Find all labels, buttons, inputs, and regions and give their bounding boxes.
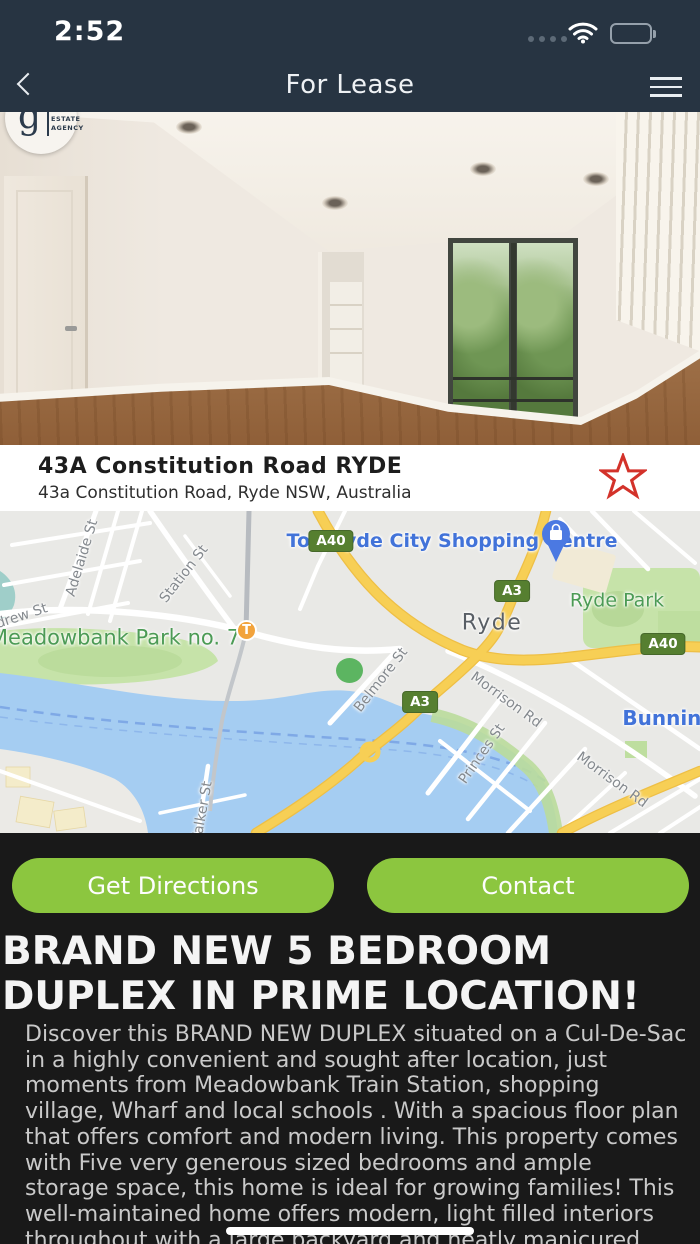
downlight [322,196,348,210]
route-shield-a3: A3 [402,691,438,713]
agency-monogram: g [18,112,41,137]
poi-label-ryde-park: Ryde Park [570,590,664,613]
listing-detail: Get Directions Contact BRAND NEW 5 BEDRO… [0,833,700,1244]
property-photo[interactable]: g REAL ESTATE AGENCY [0,112,700,445]
downlight [583,172,609,186]
photo-vertical-blinds [616,112,700,372]
property-title: 43A Constitution Road RYDE [38,454,402,479]
get-directions-button[interactable]: Get Directions [12,858,334,913]
hamburger-menu-button[interactable] [646,68,686,100]
app-header: 2:52 For Lease [0,0,700,112]
property-location-marker[interactable] [336,658,363,683]
photo-hallway [318,252,364,394]
photo-balcony-door [448,238,578,426]
home-indicator[interactable] [226,1227,474,1235]
status-bar: 2:52 [0,0,700,56]
agency-logo-text: REAL ESTATE AGENCY [51,112,84,133]
map-view[interactable]: Adelaide St Station St Andrew St Belmore… [0,511,700,833]
clock: 2:52 [54,16,125,47]
nav-bar: For Lease [0,56,700,112]
locality-label-ryde: Ryde [462,611,523,636]
property-address: 43a Constitution Road, Ryde NSW, Austral… [38,483,412,503]
address-bar: 43A Constitution Road RYDE 43a Constitut… [0,445,700,511]
favorite-star-button[interactable] [598,453,648,503]
app-screen: 2:52 For Lease [0,0,700,1244]
listing-description: Discover this BRAND NEW DUPLEX situated … [25,1022,700,1244]
route-shield-a40: A40 [308,530,353,552]
poi-label-meadowbank-park: Meadowbank Park no. 7 [0,627,240,650]
battery-icon [610,23,652,44]
downlight [176,120,202,134]
route-shield-a3: A3 [494,580,530,602]
poi-label-bunnings: Bunnings [622,706,700,730]
downlight [470,162,496,176]
train-station-icon: T [236,620,257,641]
page-title: For Lease [0,70,700,100]
route-shield-a40: A40 [640,633,685,655]
listing-headline: BRAND NEW 5 BEDROOM DUPLEX IN PRIME LOCA… [2,929,700,1019]
contact-button[interactable]: Contact [367,858,689,913]
shopping-centre-pin-icon[interactable] [538,518,574,568]
wifi-icon [568,22,598,48]
cellular-signal-icon [528,36,567,42]
